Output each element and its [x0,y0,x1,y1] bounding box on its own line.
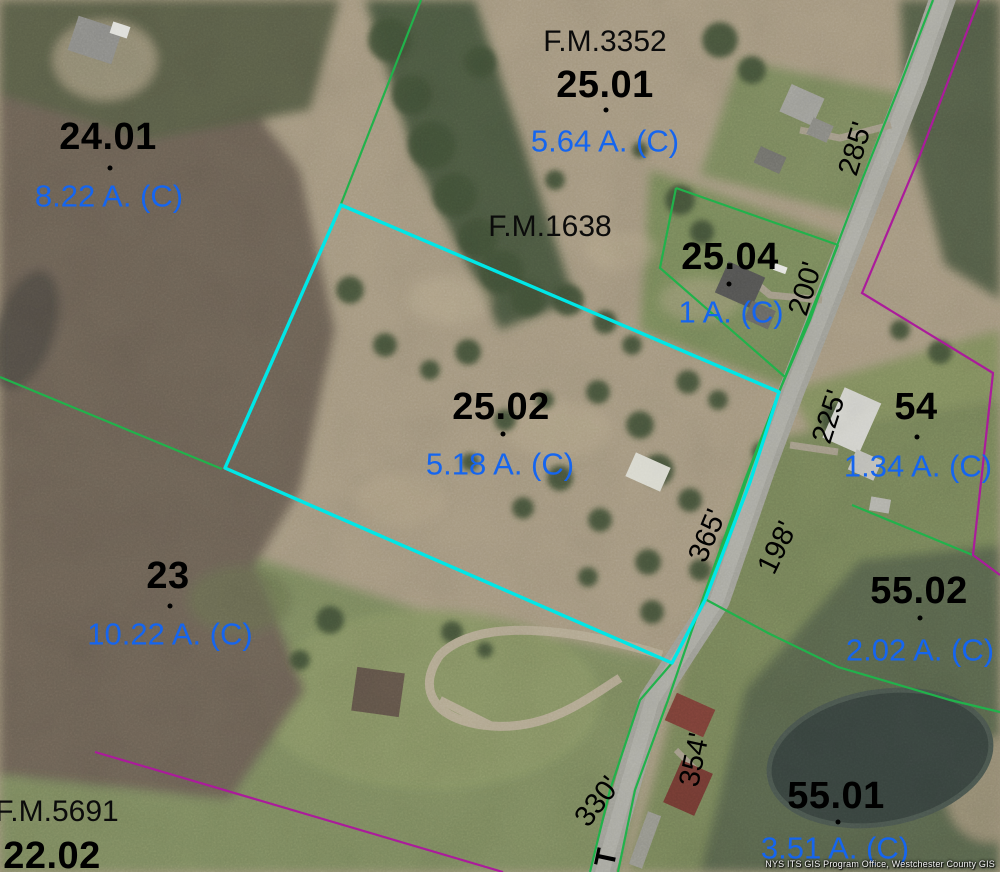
parcel-label-25-02[interactable]: 25.02 [452,388,550,426]
parcel-label-25-04[interactable]: 25.04 [681,238,779,276]
parcel-centroid-dot [727,282,732,287]
gis-parcel-map-canvas[interactable]: 24.01 8.22 A. (C) F.M.3352 25.01 5.64 A.… [0,0,1000,872]
filed-map-label-5691: F.M.5691 [0,797,119,827]
parcel-label-25-01[interactable]: 25.01 [556,66,654,104]
parcel-area-25-02: 5.18 A. (C) [426,449,574,480]
parcel-centroid-dot [915,435,920,440]
parcel-centroid-dot [604,108,609,113]
parcel-centroid-dot [501,432,506,437]
parcel-centroid-dot [918,616,923,621]
parcel-area-54: 1.34 A. (C) [844,451,992,482]
parcel-centroid-dot [168,604,173,609]
filed-map-label-1638: F.M.1638 [488,212,611,242]
parcel-centroid-dot [836,820,841,825]
parcel-label-55-02[interactable]: 55.02 [870,572,968,610]
parcel-label-22-02[interactable]: 22.02 [3,837,101,872]
parcel-area-55-02: 2.02 A. (C) [846,635,994,666]
parcel-area-23: 10.22 A. (C) [87,619,252,650]
parcel-label-54[interactable]: 54 [894,388,937,426]
parcel-area-25-01: 5.64 A. (C) [531,126,679,157]
parcel-label-23[interactable]: 23 [146,557,189,595]
filed-map-label-3352: F.M.3352 [543,27,666,57]
parcel-label-24-01[interactable]: 24.01 [59,118,157,156]
parcel-area-24-01: 8.22 A. (C) [35,181,183,212]
parcel-label-55-01[interactable]: 55.01 [787,777,885,815]
parcel-centroid-dot [108,166,113,171]
attribution-watermark: NYS ITS GIS Program Office, Westchester … [765,859,995,869]
parcel-area-25-04: 1 A. (C) [678,297,783,328]
